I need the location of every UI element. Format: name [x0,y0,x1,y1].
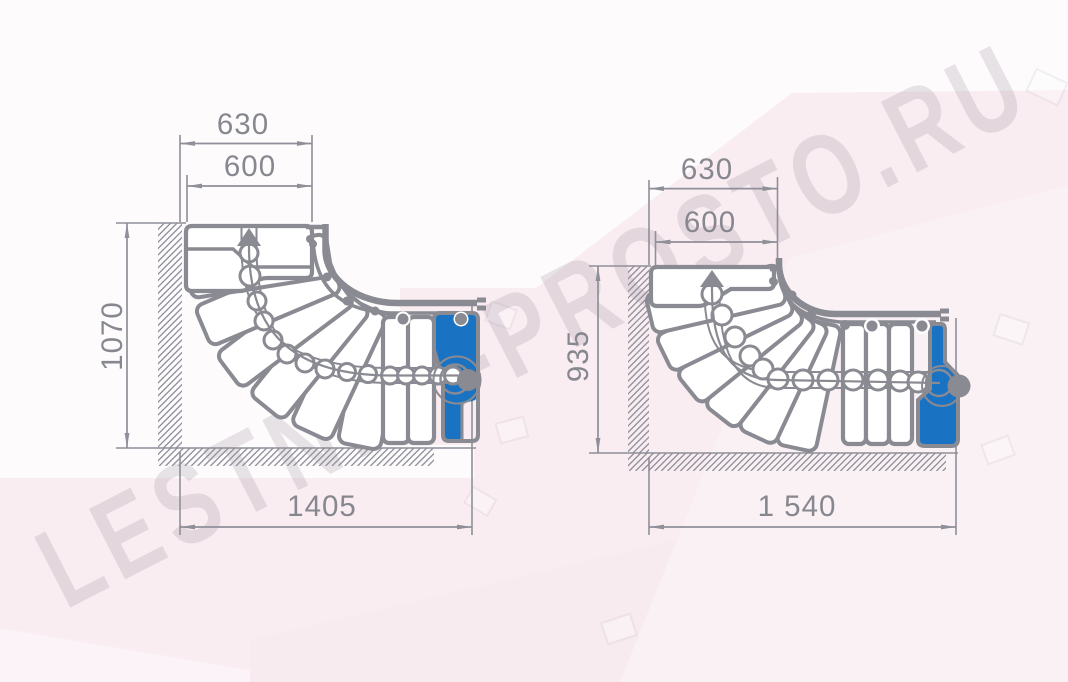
svg-text:630: 630 [217,108,269,141]
svg-text:1405: 1405 [287,490,357,523]
svg-text:1 540: 1 540 [758,490,837,523]
svg-text:600: 600 [224,150,276,183]
svg-text:600: 600 [684,206,736,239]
svg-text:630: 630 [681,153,733,186]
svg-text:1070: 1070 [96,301,129,371]
svg-text:935: 935 [562,330,595,382]
